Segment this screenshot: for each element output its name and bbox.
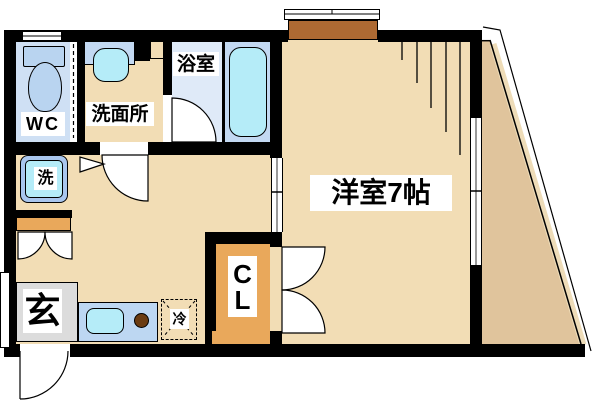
- front-door-swing: [20, 351, 68, 399]
- washroom-column: [150, 42, 163, 59]
- bathtub-icon: [229, 47, 267, 137]
- closet-label-c: C: [233, 261, 252, 287]
- kitchen-sink-icon: [86, 308, 124, 334]
- wc-label: WC: [21, 112, 65, 136]
- bathroom-label: 浴室: [173, 52, 219, 76]
- fridge-label: 冷: [170, 309, 189, 329]
- washbasin-icon: [93, 48, 129, 82]
- closet-label: C L: [228, 256, 257, 317]
- wall-closet-right-bottom: [270, 331, 282, 344]
- wall-washroom-bath: [163, 42, 172, 97]
- entrance-label: 玄: [23, 289, 62, 333]
- wall-bottom: [4, 344, 585, 357]
- balcony-edge-strip: [493, 44, 583, 345]
- washing-machine-label: 洗: [34, 167, 57, 190]
- wall-wc-washroom: [77, 42, 85, 142]
- closet-label-l: L: [235, 287, 251, 313]
- wall-washroom-stub: [135, 42, 150, 61]
- main-room-label: 洋室7帖: [310, 175, 452, 211]
- toilet-bowl-icon: [28, 62, 62, 112]
- balcony-planter: [288, 20, 378, 40]
- balcony-outer-rail: [483, 27, 591, 351]
- bath-door-opening: [163, 95, 172, 142]
- wall-hall-top-a: [4, 142, 100, 155]
- wc-window-icon: [22, 31, 62, 41]
- sliding-door-room: [271, 158, 283, 232]
- wall-bath-room: [270, 42, 282, 158]
- main-window-icon: [284, 9, 380, 20]
- front-door-opening: [20, 344, 70, 357]
- washroom-door-opening: [100, 142, 148, 155]
- room-side-window-icon: [470, 118, 482, 265]
- wall-bath-partition: [222, 42, 225, 142]
- stove-burner-icon: [134, 313, 149, 328]
- entry-side-panel: [0, 272, 10, 348]
- wall-room-right-top: [470, 40, 482, 118]
- wall-hall-top-b: [148, 142, 282, 155]
- washroom-label: 洗面所: [86, 102, 154, 126]
- balcony-deck: [482, 40, 581, 344]
- balcony-inner-rail: [490, 40, 581, 344]
- shoe-cabinet: [16, 217, 71, 231]
- wall-closet-right-top: [270, 232, 282, 247]
- floor-plan: WC 洗面所 浴室 洗 玄 冷 C L 洋室7帖: [0, 0, 600, 408]
- wc-sliding-door: [70, 42, 77, 138]
- wall-top-east: [378, 30, 482, 42]
- wall-room-right-bottom: [470, 265, 482, 344]
